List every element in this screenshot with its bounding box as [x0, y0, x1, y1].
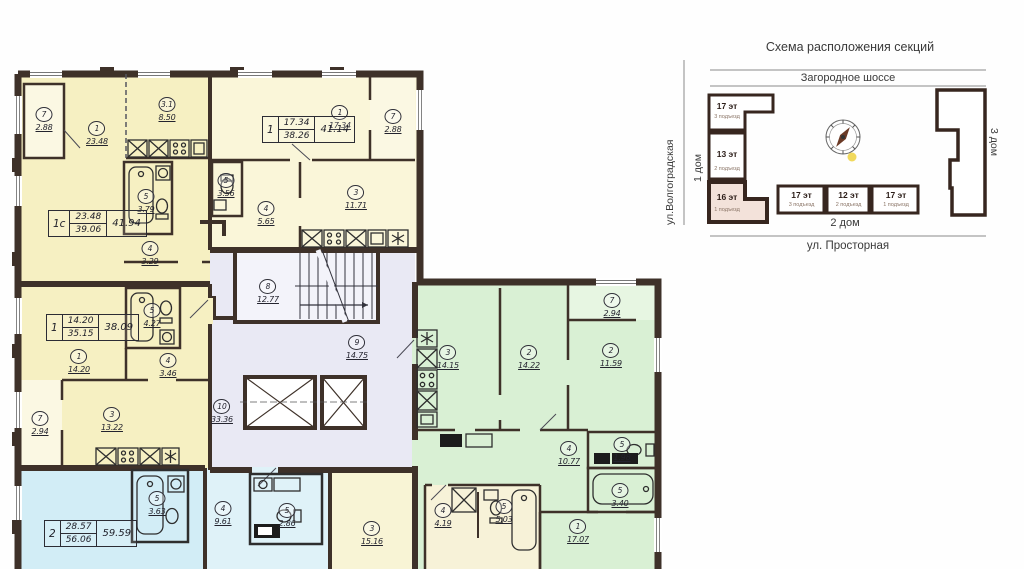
- floor-area: 35.15: [63, 328, 99, 340]
- scheme-title: Схема расположения секций: [700, 40, 1000, 54]
- room-number: 8: [260, 279, 277, 294]
- apartment-type: 1: [47, 315, 63, 340]
- room-label: 45.65: [257, 198, 274, 226]
- room-area: 17.07: [567, 535, 589, 544]
- room-area: 14.20: [68, 365, 90, 374]
- room-label: 49.61: [214, 498, 231, 526]
- section-floors: 17 эт: [779, 190, 824, 200]
- room-number: 3: [348, 185, 365, 200]
- room-area: 4.27: [143, 319, 160, 328]
- floor-area: 38.26: [279, 130, 315, 142]
- house3-label: 3 дом: [988, 128, 1000, 188]
- room-area: 11.71: [345, 201, 367, 210]
- room-label: 43.29: [141, 238, 158, 266]
- street-bottom-label: ул. Просторная: [710, 240, 986, 252]
- section-floors: 17 эт: [873, 190, 919, 200]
- room-label: 52.86: [278, 500, 295, 528]
- room-area: 3.56: [217, 189, 234, 198]
- room-number: 3.1: [158, 97, 175, 112]
- room-number: 5: [217, 173, 234, 188]
- room-number: 1: [570, 519, 587, 534]
- room-label: 53.63: [148, 488, 165, 516]
- room-number: 1: [89, 121, 106, 136]
- room-label: 53.56: [217, 170, 234, 198]
- room-area: 5.65: [257, 217, 274, 226]
- room-label: 315.16: [361, 518, 383, 546]
- elevator-icon: [240, 377, 370, 428]
- room-label: 72.94: [31, 408, 48, 436]
- house1-label: 1 дом: [692, 122, 704, 182]
- room-label: 44.19: [434, 500, 451, 528]
- room-number: 3: [104, 407, 121, 422]
- house2-label: 2 дом: [795, 217, 895, 229]
- floor-area: 56.06: [61, 534, 97, 546]
- room-label: 72.88: [384, 106, 401, 134]
- room-label: 812.77: [257, 276, 279, 304]
- room-number: 7: [35, 107, 52, 122]
- room-number: 3: [440, 345, 457, 360]
- room-number: 9: [349, 335, 366, 350]
- apartment-type: 1с: [49, 211, 70, 236]
- room-number: 7: [603, 293, 620, 308]
- section-entrance: 3 подъезд: [779, 202, 824, 208]
- room-number: 5: [611, 483, 628, 498]
- room-area: 3.40: [611, 499, 628, 508]
- room-area: 23.48: [86, 137, 108, 146]
- section-entrance: 3 подъезд: [708, 114, 746, 120]
- house1-section-highlighted: [709, 182, 767, 222]
- room-label: 410.77: [558, 438, 580, 466]
- section-entrance: 2 подъезд: [708, 166, 746, 172]
- section-entrance: 1 подъезд: [873, 202, 919, 208]
- room-number: 5: [495, 499, 512, 514]
- room-number: 4: [214, 501, 231, 516]
- room-area: 2.88: [35, 123, 52, 132]
- room-number: 7: [31, 411, 48, 426]
- section-floors: 16 эт: [708, 192, 746, 202]
- room-number: 5: [143, 303, 160, 318]
- total-area: 59.59: [97, 521, 136, 546]
- living-area: 28.57: [61, 521, 97, 534]
- room-number: 5: [613, 437, 630, 452]
- room-number: 3: [364, 521, 381, 536]
- living-area: 17.34: [279, 117, 315, 130]
- room-area: 5.03: [495, 515, 512, 524]
- room-label: 72.88: [35, 104, 52, 132]
- room-label: 214.22: [518, 342, 540, 370]
- room-label: 43.46: [159, 350, 176, 378]
- room-number: 7: [384, 109, 401, 124]
- room-number: 5: [137, 189, 154, 204]
- total-area: 41.94: [107, 211, 146, 236]
- section-floors: 12 эт: [827, 190, 870, 200]
- apartment-stamp: 1с 23.4839.06 41.94: [48, 210, 147, 237]
- room-label: 1033.36: [211, 396, 233, 424]
- section-entrance: 2 подъезд: [827, 202, 870, 208]
- room-label: 313.22: [101, 404, 123, 432]
- room-area: 8.50: [158, 113, 175, 122]
- room-area: 4.19: [434, 519, 451, 528]
- apartment-stamp: 1 17.3438.26 41.14: [262, 116, 355, 143]
- room-label: 72.94: [603, 290, 620, 318]
- apartment-stamp: 2 28.5756.06 59.59: [44, 520, 137, 547]
- room-area: 2.86: [278, 519, 295, 528]
- room-label: 55.03: [495, 496, 512, 524]
- room-label: 211.59: [600, 340, 622, 368]
- house3-outline: [937, 90, 985, 215]
- room-area: 14.22: [518, 361, 540, 370]
- room-number: 4: [141, 241, 158, 256]
- compass-icon: [826, 120, 860, 162]
- room-label: 51.98: [613, 434, 630, 462]
- room-area: 1.98: [613, 453, 630, 462]
- section-entrance: 1 подъезд: [708, 207, 746, 213]
- total-area: 41.14: [315, 117, 354, 142]
- room-area: 14.15: [437, 361, 459, 370]
- room-area: 13.22: [101, 423, 123, 432]
- room-area: 12.77: [257, 295, 279, 304]
- room-label: 123.48: [86, 118, 108, 146]
- room-area: 3.46: [159, 369, 176, 378]
- apartment-type: 2: [45, 521, 61, 546]
- room-number: 4: [434, 503, 451, 518]
- room-number: 4: [159, 353, 176, 368]
- total-area: 38.09: [99, 315, 138, 340]
- room-label: 314.15: [437, 342, 459, 370]
- room-label: 117.07: [567, 516, 589, 544]
- room-area: 11.59: [600, 359, 622, 368]
- room-area: 15.16: [361, 537, 383, 546]
- room-number: 1: [71, 349, 88, 364]
- room-number: 2: [603, 343, 620, 358]
- room-label: 54.27: [143, 300, 160, 328]
- room-label: 311.71: [345, 182, 367, 210]
- room-label: 914.75: [346, 332, 368, 360]
- room-label: 3.18.50: [158, 94, 175, 122]
- room-area: 33.36: [211, 415, 233, 424]
- room-label: 114.20: [68, 346, 90, 374]
- room-area: 14.75: [346, 351, 368, 360]
- room-number: 4: [257, 201, 274, 216]
- street-left-label: ул.Волгоградская: [664, 90, 676, 225]
- room-area: 10.77: [558, 457, 580, 466]
- room-area: 2.94: [603, 309, 620, 318]
- room-number: 10: [214, 399, 231, 414]
- section-floors: 17 эт: [708, 101, 746, 111]
- room-area: 9.61: [214, 517, 231, 526]
- floorplan-page: 72.88 123.48 3.18.50 53.79 43.29 53.56 1…: [0, 0, 1024, 569]
- room-area: 3.63: [148, 507, 165, 516]
- living-area: 14.20: [63, 315, 99, 328]
- section-floors: 13 эт: [708, 149, 746, 159]
- room-area: 2.88: [384, 125, 401, 134]
- room-number: 4: [561, 441, 578, 456]
- room-number: 5: [278, 503, 295, 518]
- room-area: 3.29: [141, 257, 158, 266]
- apartment-stamp: 1 14.2035.15 38.09: [46, 314, 139, 341]
- road-top-label: Загородное шоссе: [710, 72, 986, 84]
- room-number: 2: [521, 345, 538, 360]
- floor-area: 39.06: [70, 224, 106, 236]
- apartment-type: 1: [263, 117, 279, 142]
- living-area: 23.48: [70, 211, 106, 224]
- room-area: 2.94: [31, 427, 48, 436]
- room-number: 5: [148, 491, 165, 506]
- floor-plan-drawing: [0, 0, 1024, 569]
- room-label: 53.40: [611, 480, 628, 508]
